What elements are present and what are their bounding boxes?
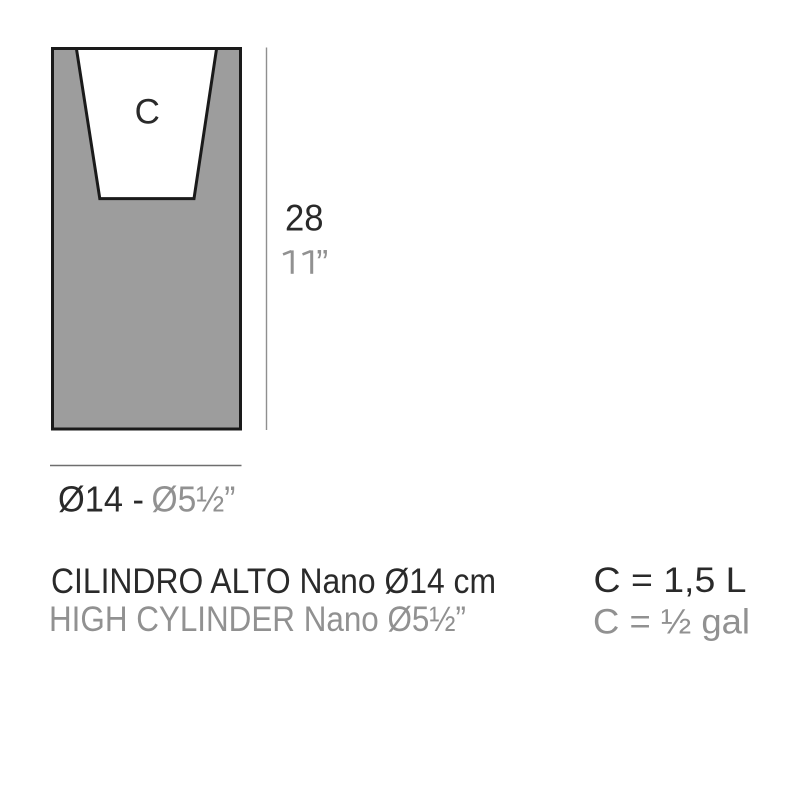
svg-text:28: 28: [285, 197, 324, 238]
svg-text:C: C: [135, 93, 160, 132]
svg-text:Ø14 -: Ø14 -: [58, 479, 144, 520]
svg-text:C = ½ gal: C = ½ gal: [593, 603, 750, 642]
svg-text:CILINDRO ALTO Nano Ø14 cm: CILINDRO ALTO Nano Ø14 cm: [51, 562, 496, 601]
svg-text:Ø5½”: Ø5½”: [152, 479, 236, 520]
svg-text:HIGH CYLINDER Nano Ø5½”: HIGH CYLINDER Nano Ø5½”: [49, 600, 466, 639]
svg-text:C = 1,5 L: C = 1,5 L: [594, 561, 747, 600]
svg-text:”: ”: [316, 242, 328, 283]
